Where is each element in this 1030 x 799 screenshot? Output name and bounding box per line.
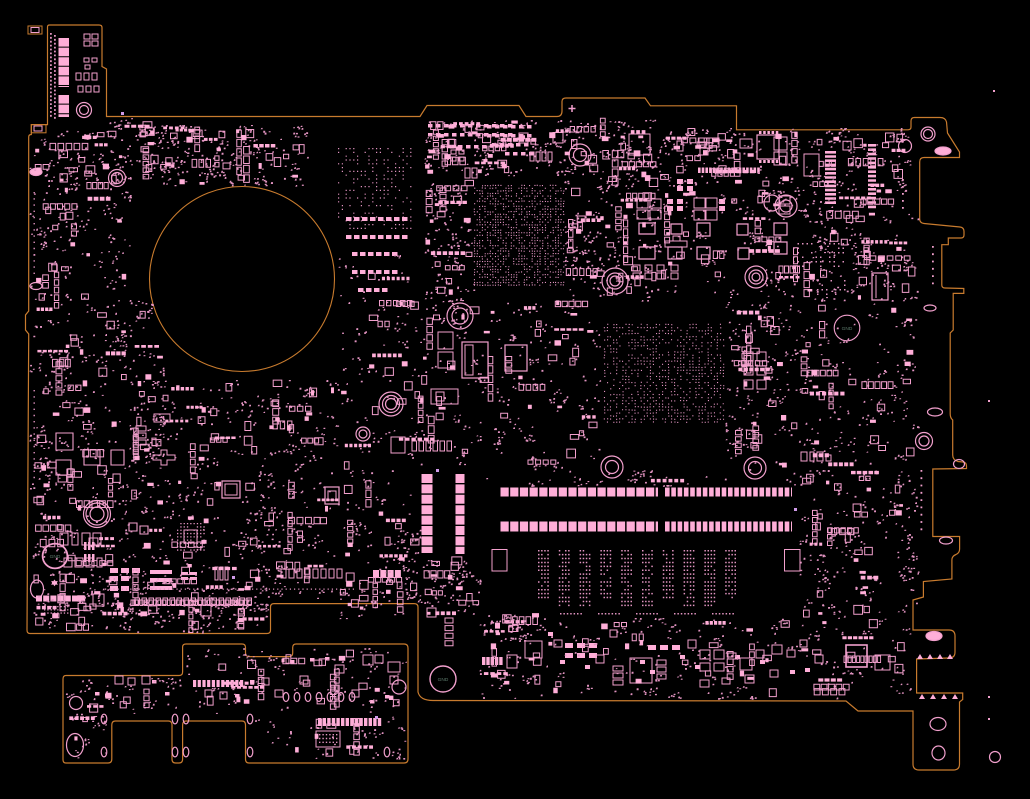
svg-text:GND: GND bbox=[842, 326, 853, 332]
svg-text:GND: GND bbox=[50, 554, 61, 560]
svg-text:GND: GND bbox=[438, 677, 449, 683]
